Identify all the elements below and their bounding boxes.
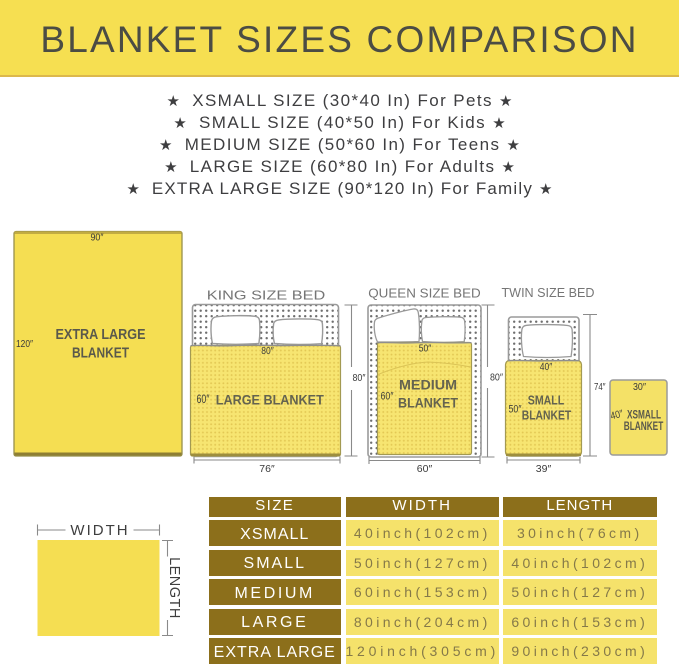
svg-text:80″: 80″ <box>490 372 503 384</box>
svg-text:60″: 60″ <box>381 391 394 403</box>
svg-text:50″: 50″ <box>419 343 432 355</box>
svg-text:60″: 60″ <box>197 394 210 406</box>
svg-text:SMALL: SMALL <box>528 393 565 407</box>
svg-text:LARGE BLANKET: LARGE BLANKET <box>216 391 324 407</box>
svg-text:MEDIUM: MEDIUM <box>399 378 457 393</box>
svg-text:BLANKET: BLANKET <box>522 408 572 422</box>
svg-text:BLANKET: BLANKET <box>72 346 129 362</box>
svg-text:LENGTH: LENGTH <box>166 557 182 619</box>
svg-text:60″: 60″ <box>417 463 433 475</box>
svg-text:120″: 120″ <box>16 339 33 350</box>
svg-text:50″: 50″ <box>509 404 522 416</box>
svg-text:74″: 74″ <box>594 381 606 393</box>
svg-text:EXTRA LARGE: EXTRA LARGE <box>56 327 146 343</box>
svg-text:QUEEN SIZE BED: QUEEN SIZE BED <box>368 287 481 301</box>
svg-text:80″: 80″ <box>261 345 274 357</box>
svg-text:TWIN SIZE BED: TWIN SIZE BED <box>502 286 595 300</box>
svg-text:39″: 39″ <box>536 463 552 475</box>
svg-text:WIDTH: WIDTH <box>70 522 129 539</box>
svg-text:76″: 76″ <box>259 463 275 475</box>
svg-text:XSMALL: XSMALL <box>627 410 661 422</box>
svg-text:80″: 80″ <box>353 372 366 384</box>
svg-text:90″: 90″ <box>91 233 104 244</box>
svg-text:BLANKET: BLANKET <box>624 421 664 433</box>
svg-text:BLANKET: BLANKET <box>398 396 459 411</box>
svg-text:KING SIZE BED: KING SIZE BED <box>207 289 326 303</box>
svg-text:30″: 30″ <box>633 382 646 393</box>
svg-text:40″: 40″ <box>540 361 553 373</box>
